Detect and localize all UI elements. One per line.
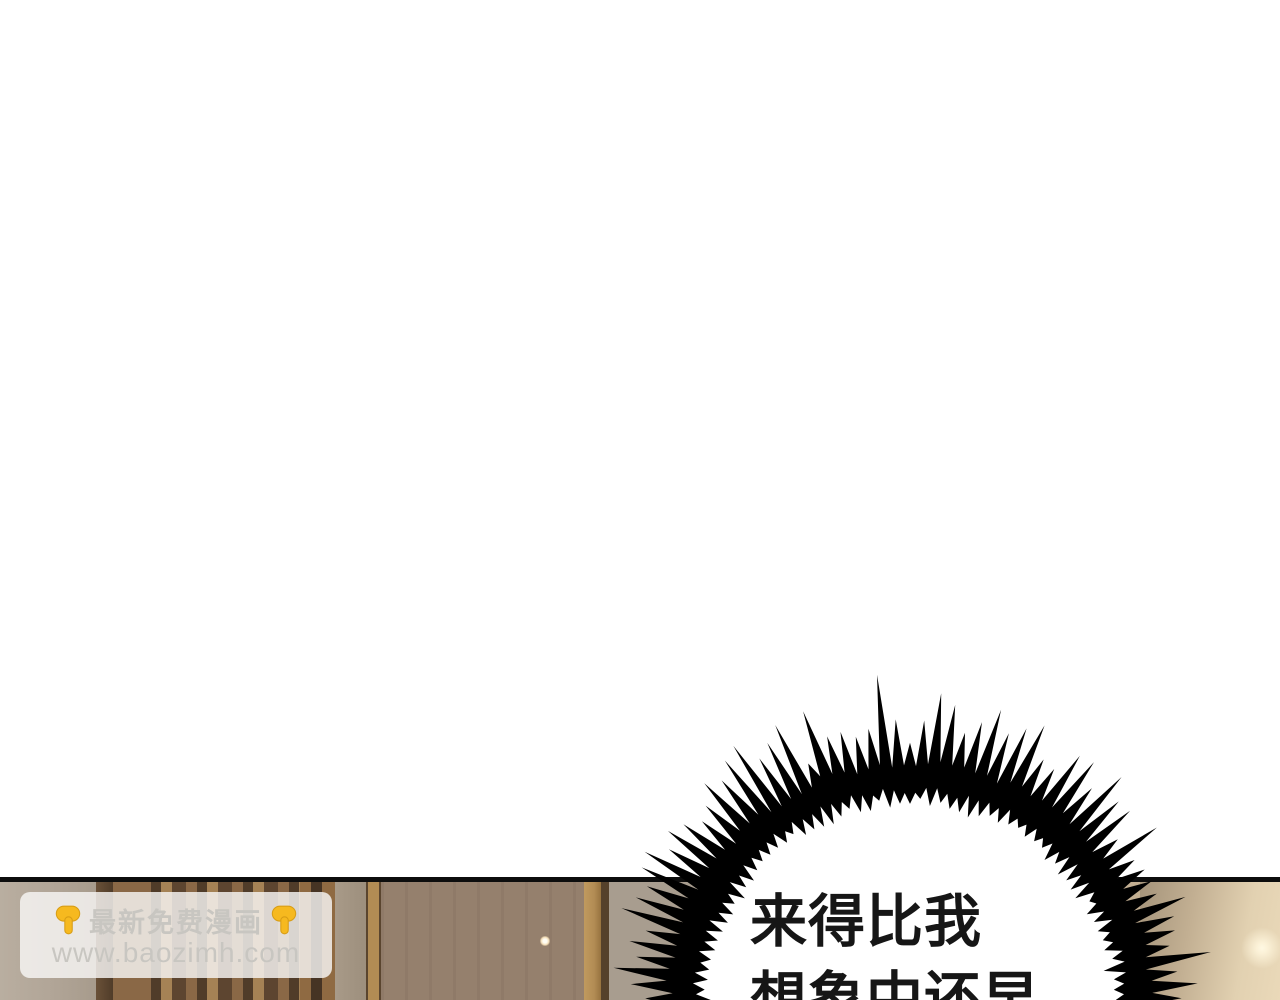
scene-wall-middle	[381, 882, 584, 1000]
watermark-title-row: 最新免费漫画	[51, 901, 301, 939]
scene-gold-post	[366, 882, 381, 1000]
pointing-down-hand-icon	[51, 903, 85, 937]
speech-bubble-text: 来得比我 想象中还早。	[750, 884, 1170, 1000]
watermark-card: 最新免费漫画 www.baozimh.com	[20, 892, 332, 978]
light-sparkle	[540, 936, 550, 946]
pointing-down-hand-icon	[267, 903, 301, 937]
scene-wall-section	[335, 882, 366, 1000]
watermark-url: www.baozimh.com	[52, 937, 300, 969]
watermark-title: 最新免费漫画	[89, 901, 263, 940]
speech-line: 来得比我	[750, 884, 1170, 961]
speech-line: 想象中还早。	[750, 961, 1170, 1000]
comic-page: 来得比我 想象中还早。 最新免费漫画 www.baozimh.com	[0, 0, 1280, 1000]
